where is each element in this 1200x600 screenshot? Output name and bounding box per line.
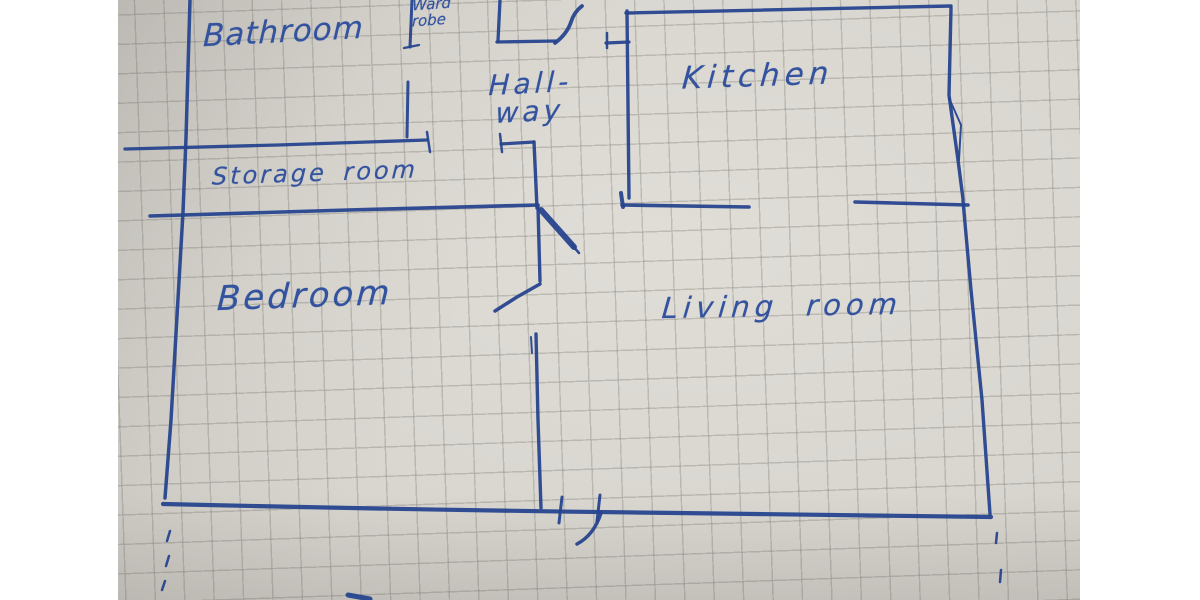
- wall-left-outer: [165, 0, 190, 498]
- wall-hallway-bottom-stub: [501, 142, 534, 144]
- wall-bathroom-bottom: [125, 140, 427, 149]
- wall-continuation-dash: [996, 533, 997, 543]
- wall-kitchen-bottom-right: [855, 202, 968, 205]
- wall-continuation-dash: [167, 531, 170, 541]
- floor-plan-photo: Bathroom Ward robe Hall- way Kitchen Sto…: [0, 0, 1200, 600]
- ink-mark-bottom-edge: [348, 595, 370, 599]
- room-label-wardrobe: Ward robe: [412, 0, 451, 29]
- room-label-text: Kitchen: [681, 55, 835, 96]
- wall-kitchen-top: [626, 6, 951, 13]
- room-label-bedroom: Bedroom: [216, 273, 394, 319]
- wall-continuation-dash: [1000, 570, 1001, 582]
- crop-margin-left: [0, 0, 118, 600]
- wall-wardrobe-foot: [404, 45, 419, 48]
- door-jamb-tick: [427, 132, 430, 152]
- room-label-hallway: Hall- way: [487, 68, 573, 129]
- wall-hallway-top: [497, 41, 556, 42]
- wall-kitchen-stub: [606, 42, 629, 43]
- room-label-text: robe: [412, 11, 451, 30]
- door-jamb-tick: [559, 497, 562, 523]
- wall-hallway-left-vertical: [498, 0, 500, 41]
- room-label-kitchen: Kitchen: [681, 55, 835, 96]
- wall-storage-bottom: [150, 205, 538, 216]
- wall-divider: [536, 334, 541, 508]
- wall-continuation-dash: [166, 556, 169, 566]
- door-jamb-tick: [531, 337, 532, 353]
- room-label-text: Living room: [661, 287, 904, 325]
- wall-hallway-right-vertical: [534, 142, 537, 208]
- room-label-text: Bedroom: [216, 273, 394, 319]
- wall-bottom-outer: [163, 504, 991, 517]
- wall-kitchen-left: [627, 11, 629, 198]
- door-swing-hallway-top: [555, 6, 582, 43]
- wall-right-outer: [963, 201, 990, 514]
- door-leaf-bedroom: [495, 284, 540, 311]
- wall-bathroom-right: [407, 82, 408, 137]
- graph-paper: Bathroom Ward robe Hall- way Kitchen Sto…: [118, 0, 1080, 600]
- wall-divider-stub: [538, 207, 540, 281]
- room-label-text: way: [487, 96, 572, 128]
- door-leaf-living: [541, 210, 574, 247]
- crop-margin-right: [1080, 0, 1200, 600]
- wall-continuation-dash: [162, 581, 165, 590]
- room-label-living-room: Living room: [661, 287, 904, 325]
- wall-kitchen-bottom-left: [622, 205, 749, 207]
